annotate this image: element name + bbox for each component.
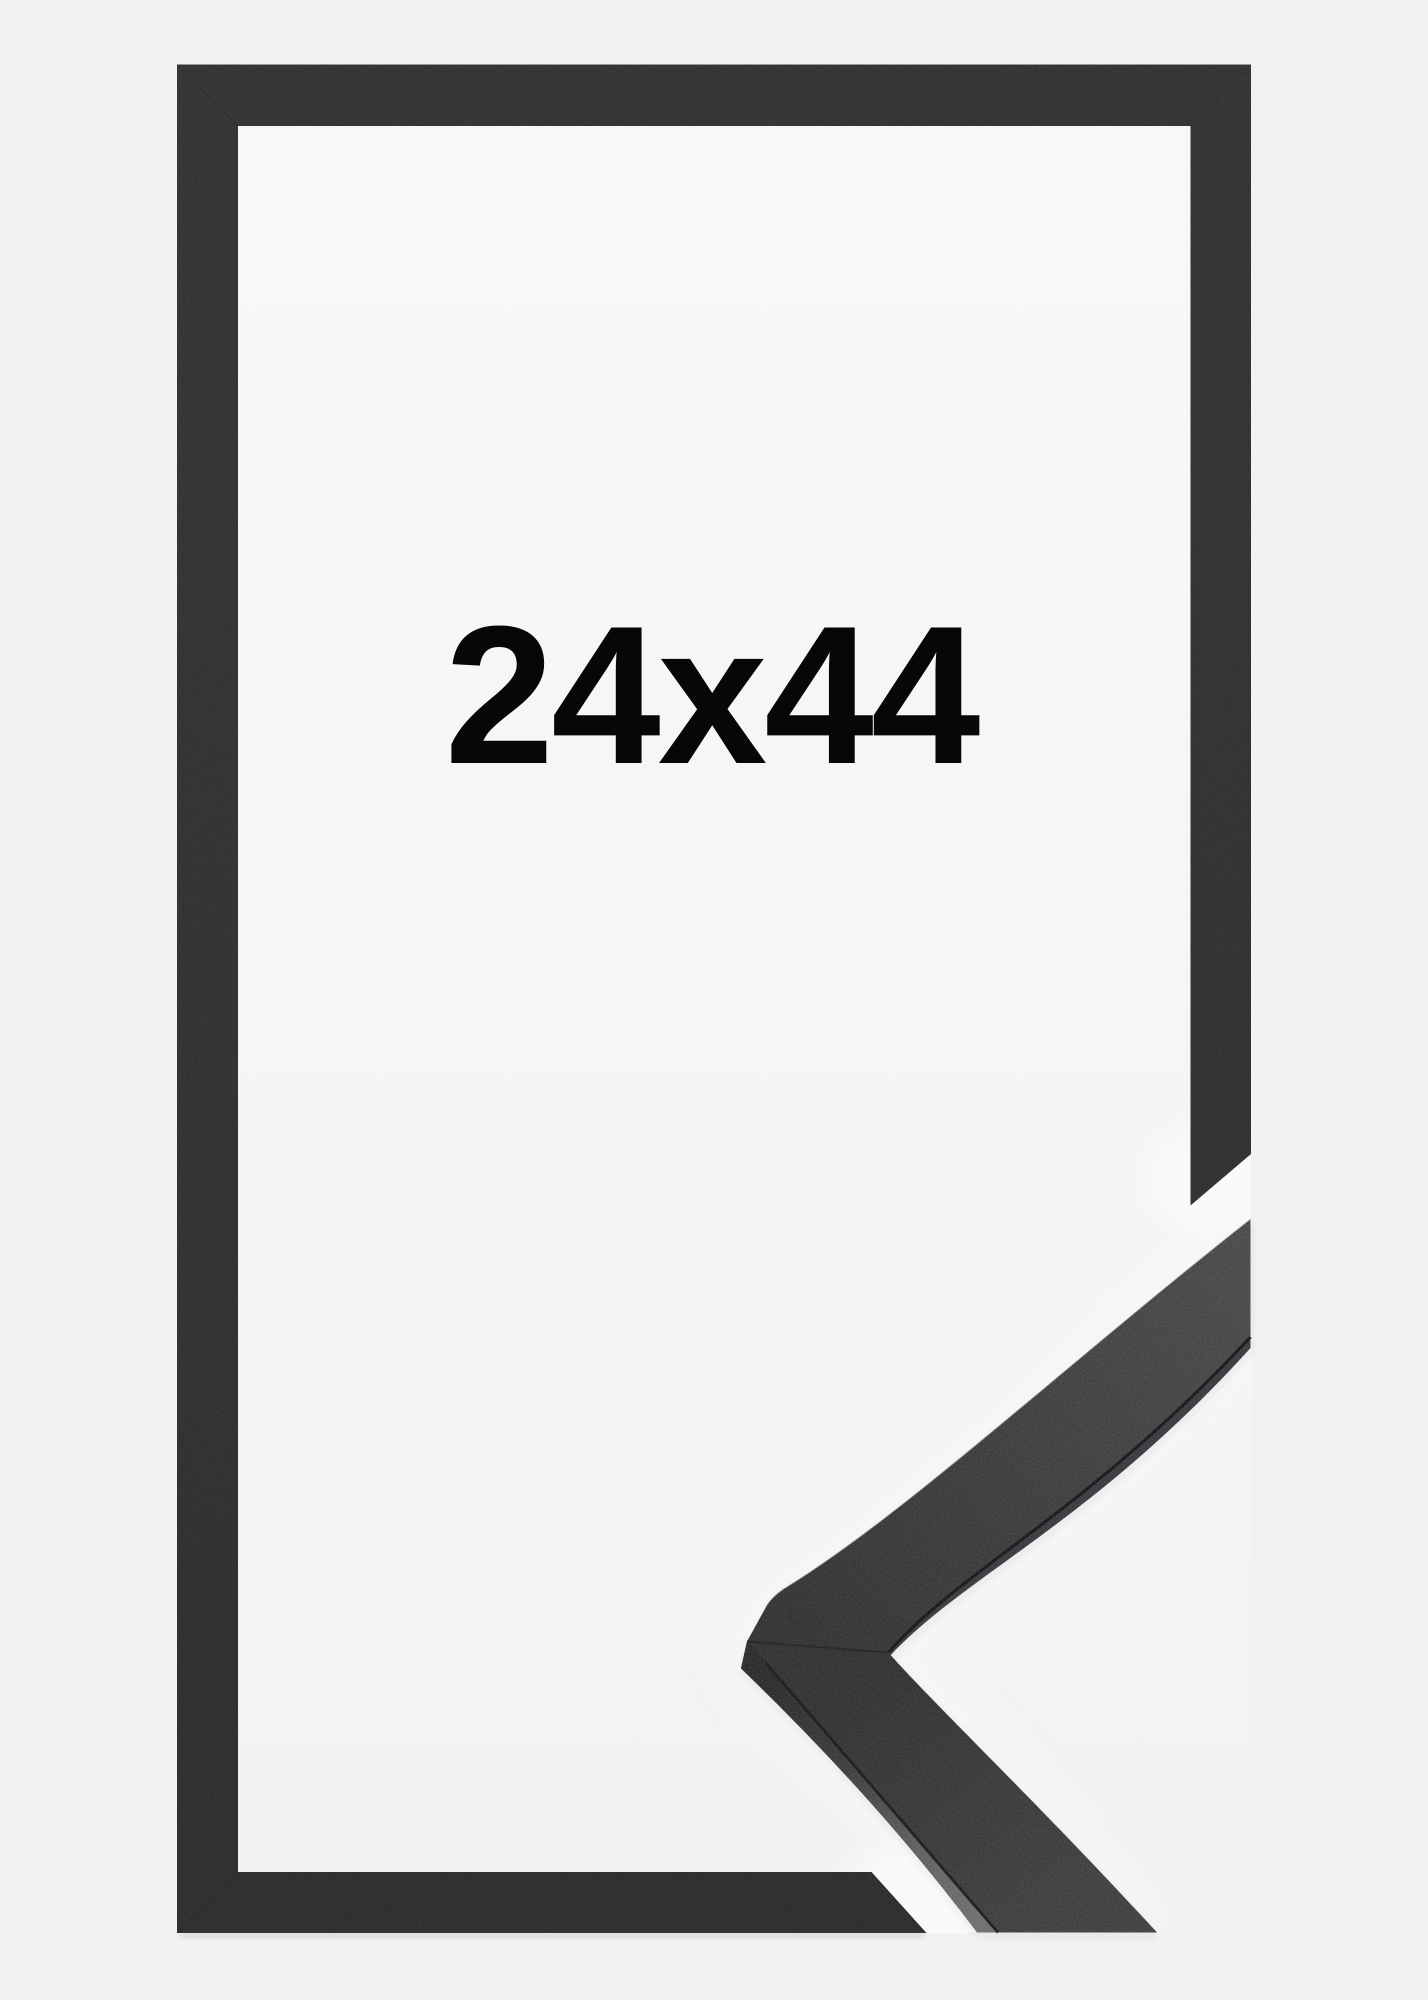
svg-text:24x44: 24x44 — [445, 585, 980, 805]
